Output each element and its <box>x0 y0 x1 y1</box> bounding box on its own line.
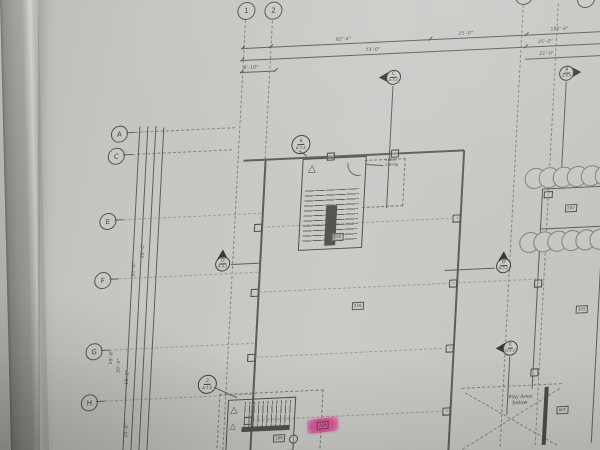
section-cut-line <box>561 82 567 170</box>
pink-highlighter-mark: 216 <box>308 417 338 434</box>
room-tag-stair-upper: 100 <box>331 233 343 242</box>
grid-bubble-label: A <box>117 130 122 138</box>
wall-right <box>447 150 464 450</box>
wing-wall-left <box>532 189 544 389</box>
tree-canopy <box>519 228 600 253</box>
room-tag-label: 205 <box>578 306 586 311</box>
column <box>247 354 255 362</box>
floor-plan-sheet: 1 2 82'-4" 25'-0" 102'-8" 73'-0" 25'-0" … <box>0 0 600 450</box>
marker-sheet: A-7.2 <box>202 385 212 390</box>
thick-wall <box>542 387 549 445</box>
grid-line-row-a <box>135 127 235 133</box>
grid-line-row-e <box>123 213 260 220</box>
dimension-text: 22'-0" <box>539 51 554 57</box>
interior-grid-line <box>259 282 456 292</box>
marker-sheet: A-3.2 <box>505 349 515 354</box>
dimension-text: 30'-0" <box>116 358 122 373</box>
dimension-text: 8'-10" <box>243 65 258 71</box>
dimension-line <box>146 128 165 450</box>
marker-sheet: A-3.2 <box>388 78 398 83</box>
grid-bubble-partial <box>577 0 596 8</box>
grid-bubble-label: E <box>105 217 110 225</box>
grid-line-right-b <box>535 3 559 445</box>
grid-bubble-row-f: F <box>94 272 112 290</box>
grid-bubble-col-2: 2 <box>264 1 283 20</box>
dimension-text: 28'-0" <box>140 243 146 258</box>
dimension-line <box>138 126 157 450</box>
room-tag-label: 207 <box>567 205 575 210</box>
grid-bubble-label: C <box>114 152 119 160</box>
lobby-note: Lobby Ceiling <box>385 157 398 167</box>
grid-bubble-label: F <box>101 276 105 284</box>
grid-bubble-label: 1 <box>244 7 249 15</box>
grid-bubble-label: H <box>87 399 93 407</box>
grid-bubble-row-h: H <box>80 394 98 412</box>
room-tag-label: 199 <box>275 435 283 440</box>
play-area-label: Play Area Below <box>498 393 543 407</box>
column <box>530 368 538 376</box>
section-cut-line <box>445 268 495 271</box>
column <box>254 224 262 232</box>
marker-sheet: A-3.3 <box>562 74 572 79</box>
dimension-line <box>525 54 600 59</box>
dimension-text: 19'-8" <box>109 349 115 364</box>
photo-of-floor-plan: 1 2 82'-4" 25'-0" 102'-8" 73'-0" 25'-0" … <box>0 0 600 450</box>
interior-grid-line <box>255 347 452 357</box>
grid-bubble-row-e: E <box>99 213 117 231</box>
column <box>250 289 258 297</box>
room-tag-play-area: 601 <box>556 406 568 415</box>
lobby-note-line2: Ceiling <box>385 162 398 167</box>
grid-line-right-a <box>500 5 524 447</box>
dimension-line <box>122 127 141 450</box>
section-cut-line <box>231 263 260 265</box>
bubble-leader <box>101 350 110 351</box>
dimension-text: 25'-0" <box>458 31 473 37</box>
dimension-text: 20'-8" <box>124 422 130 437</box>
grid-bubble-label: G <box>91 348 97 356</box>
dimension-text: 102'-8" <box>550 27 568 33</box>
grid-bubble-label: 2 <box>271 7 276 15</box>
room-tag: 216 <box>352 302 364 311</box>
tick-mark <box>274 68 278 72</box>
grid-bubble-partial <box>515 0 534 5</box>
marker-sheet: A-3.2 <box>499 266 509 271</box>
room-tag-label: 100 <box>333 234 341 239</box>
bubble-leader <box>114 219 123 220</box>
marker-sheet: A-7.2 <box>296 145 306 150</box>
triangle-symbol: △ <box>308 164 316 174</box>
dimension-text: 82'-4" <box>336 37 351 43</box>
bubble-leader <box>109 278 118 279</box>
bubble-leader <box>96 401 105 402</box>
room-tag-right: 205 <box>576 305 588 314</box>
dimension-text: 16'-2" <box>125 370 131 385</box>
tree-canopy <box>524 164 600 189</box>
detail-marker-2: 2 A-7.2 <box>197 374 217 394</box>
grid-bubble-row-g: G <box>85 343 103 361</box>
room-tag-wing: 207 <box>565 204 577 213</box>
room-tag-label: 216 <box>319 422 327 428</box>
grid-bubble-row-a: A <box>111 125 129 143</box>
marker-sheet: A-3.2 <box>218 264 228 269</box>
room-tag-stair-lower: 199 <box>273 434 285 443</box>
section-marker-d-right: DA-3.2 <box>496 258 512 274</box>
dimension-text: 73'-0" <box>365 48 380 54</box>
room-tag-label: 601 <box>558 407 566 412</box>
grid-line-1 <box>222 20 246 450</box>
section-marker-c: CA-3.2 <box>386 70 402 86</box>
paper-crease-shadow <box>38 0 54 450</box>
section-marker-e: EA-3.2 <box>502 340 518 356</box>
wall-notch <box>544 191 553 198</box>
room-tag-label: 216 <box>354 303 362 308</box>
grid-line-row-g <box>110 343 254 351</box>
triangle-symbol: △ <box>229 421 236 431</box>
wing-wall-right <box>591 183 600 443</box>
triangle-symbol: △ <box>230 405 237 415</box>
grid-bubble-col-1: 1 <box>237 2 256 21</box>
play-area-line2: Below <box>498 399 542 407</box>
floor-opening-dashed <box>362 158 406 208</box>
dimension-line <box>130 126 149 450</box>
section-marker-d-left: DA-3.2 <box>215 256 231 272</box>
wall-shading <box>0 0 40 450</box>
grid-bubble-row-c: C <box>107 147 125 165</box>
dimension-text: 30'-0" <box>132 261 138 276</box>
room-tag-highlighted: 216 <box>317 421 329 430</box>
column <box>534 279 542 287</box>
dimension-text: 25'-0" <box>538 39 553 45</box>
interior-grid-line <box>458 279 536 284</box>
bubble-leader <box>123 154 132 155</box>
section-marker-b: BA-3.3 <box>559 65 575 81</box>
bubble-leader <box>126 132 135 133</box>
